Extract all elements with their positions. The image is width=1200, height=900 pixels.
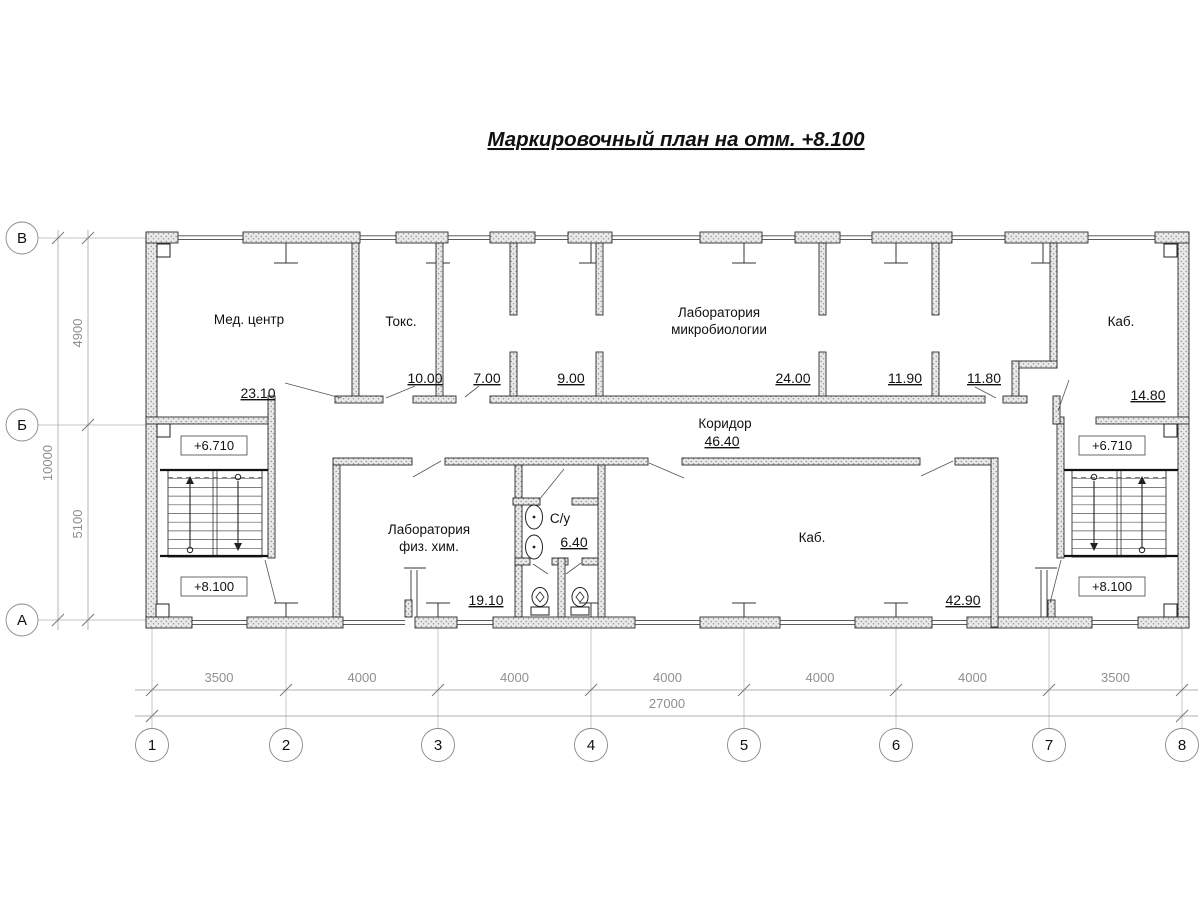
- axis-label: Б: [17, 417, 27, 434]
- wall: [991, 458, 998, 627]
- wall: [932, 243, 939, 315]
- wall: [872, 232, 952, 243]
- room-area-label: 9.00: [557, 370, 584, 386]
- wall: [596, 352, 603, 403]
- wall: [1053, 396, 1060, 424]
- axis-label: 3: [434, 737, 442, 754]
- wall: [352, 243, 359, 399]
- wall: [146, 417, 275, 424]
- room-area-label: 24.00: [775, 370, 810, 386]
- wall: [1003, 396, 1027, 403]
- wall: [795, 232, 840, 243]
- dim-label: 3500: [205, 670, 234, 685]
- wall: [572, 498, 598, 505]
- drawing-title: Маркировочный план на отм. +8.100: [487, 128, 865, 151]
- door-leader: [386, 386, 415, 398]
- wall: [513, 498, 540, 505]
- wall: [582, 558, 598, 565]
- windows: [178, 236, 1155, 625]
- walls: [146, 232, 1189, 628]
- room-area-label: 11.80: [967, 370, 1001, 386]
- wall: [243, 232, 360, 243]
- door-leader-lines: [265, 380, 1069, 603]
- dim-label: 4000: [653, 670, 682, 685]
- wall: [558, 558, 565, 617]
- wall: [146, 232, 178, 243]
- wall: [568, 232, 612, 243]
- wall: [515, 558, 530, 565]
- axis-tick-mark: [884, 243, 908, 263]
- pilaster-notch: [1164, 244, 1177, 257]
- wall: [510, 352, 517, 403]
- room-name-label: Коридор: [698, 416, 751, 431]
- wall: [268, 396, 275, 558]
- axis-label: А: [17, 612, 27, 629]
- wall: [413, 396, 456, 403]
- wall: [510, 243, 517, 315]
- sink-drain: [533, 516, 536, 519]
- axis-tick-mark: [426, 603, 450, 617]
- wall: [855, 617, 932, 628]
- room-area-label: 10.00: [407, 370, 442, 386]
- level-label: +6.710: [1092, 438, 1132, 453]
- axis-tick-mark: [274, 603, 298, 617]
- wall: [1096, 417, 1189, 424]
- pilaster-notch: [157, 424, 170, 437]
- room-area-label: 11.90: [888, 370, 922, 386]
- wall: [1005, 232, 1088, 243]
- wall: [819, 243, 826, 315]
- axis-tick-mark: [732, 603, 756, 617]
- wall: [405, 600, 412, 617]
- toilet-detail: [576, 592, 584, 602]
- room-name-label: Каб.: [799, 530, 826, 545]
- room-name-label: Мед. центр: [214, 312, 284, 327]
- dim-label: 4000: [806, 670, 835, 685]
- axis-label: 8: [1178, 737, 1186, 754]
- door-leader: [921, 461, 953, 476]
- stair-arrow-head: [1090, 543, 1098, 551]
- pilaster-notch: [157, 244, 170, 257]
- room-area-label: 42.90: [945, 592, 980, 608]
- door-leader: [413, 461, 441, 477]
- wall: [333, 465, 340, 617]
- room-name-label: Лаборатория: [388, 522, 470, 537]
- toilet-detail: [536, 592, 544, 602]
- dim-label: 4900: [70, 319, 85, 348]
- door-leader: [265, 560, 276, 603]
- dim-label: 4000: [348, 670, 377, 685]
- axis-label: 6: [892, 737, 900, 754]
- dim-total-label: 27000: [649, 696, 685, 711]
- wall: [682, 458, 920, 465]
- wall: [1048, 600, 1055, 617]
- dim-label: 10000: [40, 445, 55, 481]
- room-area-label: 19.10: [468, 592, 503, 608]
- dim-label: 3500: [1101, 670, 1130, 685]
- axis-label: 1: [148, 737, 156, 754]
- wall: [1178, 232, 1189, 628]
- sink-drain: [533, 546, 536, 549]
- wall: [932, 352, 939, 403]
- room-area-label: 46.40: [704, 433, 739, 449]
- pilaster-notch: [1164, 604, 1177, 617]
- axis-tick-mark: [884, 603, 908, 617]
- wall: [333, 458, 412, 465]
- door-leader: [533, 564, 548, 574]
- room-name-label: Лаборатория: [678, 305, 760, 320]
- room-name-label: микробиологии: [671, 322, 767, 337]
- room-area-label: 23.10: [240, 385, 275, 401]
- dim-label: 5100: [70, 510, 85, 539]
- wall: [445, 458, 648, 465]
- room-area-label: 6.40: [560, 534, 587, 550]
- wall: [1057, 424, 1064, 558]
- wall: [819, 352, 826, 403]
- axis-label: 5: [740, 737, 748, 754]
- door-leader: [539, 469, 564, 500]
- door-leader: [1058, 380, 1069, 411]
- axis-label: 7: [1045, 737, 1053, 754]
- grid-lines: [38, 238, 1182, 729]
- wall: [493, 617, 635, 628]
- wall: [490, 396, 985, 403]
- wall: [596, 243, 603, 315]
- wall: [1138, 617, 1189, 628]
- toilet-tank: [531, 607, 549, 615]
- floor-plan-drawing: Маркировочный план на отм. +8.100 +6.710…: [0, 0, 1200, 900]
- room-name-label: С/у: [550, 511, 571, 526]
- wall: [396, 232, 448, 243]
- wall: [146, 617, 192, 628]
- room-area-label: 14.80: [1130, 387, 1165, 403]
- wall: [490, 232, 535, 243]
- dim-label: 4000: [500, 670, 529, 685]
- door-leader: [649, 463, 684, 478]
- axis-tick-mark: [732, 243, 756, 263]
- toilet-bowl: [532, 588, 548, 607]
- stairs: +6.710+8.100+6.710+8.100: [160, 436, 1178, 596]
- pilaster-notch: [1164, 424, 1177, 437]
- level-label: +8.100: [1092, 579, 1132, 594]
- door-leader: [465, 386, 479, 397]
- level-label: +8.100: [194, 579, 234, 594]
- wall: [598, 465, 605, 617]
- pilaster-notch: [156, 604, 169, 617]
- level-label: +6.710: [194, 438, 234, 453]
- room-name-label: Токс.: [385, 314, 416, 329]
- wall: [1155, 232, 1189, 243]
- wall: [515, 465, 522, 617]
- axis-tick-mark: [274, 243, 298, 263]
- stair-arrow-head: [234, 543, 242, 551]
- wall: [700, 617, 780, 628]
- wall: [335, 396, 383, 403]
- floor-plan-page: Маркировочный план на отм. +8.100 +6.710…: [0, 0, 1200, 900]
- toilet-tank: [571, 607, 589, 615]
- axis-label: 4: [587, 737, 595, 754]
- wall: [146, 232, 157, 628]
- room-name-label: Каб.: [1108, 314, 1135, 329]
- dimension-lines: 3500400040004000400040003500270001000049…: [40, 230, 1198, 722]
- axis-label: В: [17, 230, 27, 247]
- door-leader: [285, 383, 341, 398]
- wall: [967, 617, 1092, 628]
- wall: [1050, 243, 1057, 368]
- room-area-label: 7.00: [473, 370, 500, 386]
- dim-label: 4000: [958, 670, 987, 685]
- wall: [247, 617, 343, 628]
- room-name-label: физ. хим.: [399, 539, 459, 554]
- door-leader: [1050, 560, 1061, 603]
- axis-label: 2: [282, 737, 290, 754]
- wall: [415, 617, 457, 628]
- toilet-bowl: [572, 588, 588, 607]
- wall: [700, 232, 762, 243]
